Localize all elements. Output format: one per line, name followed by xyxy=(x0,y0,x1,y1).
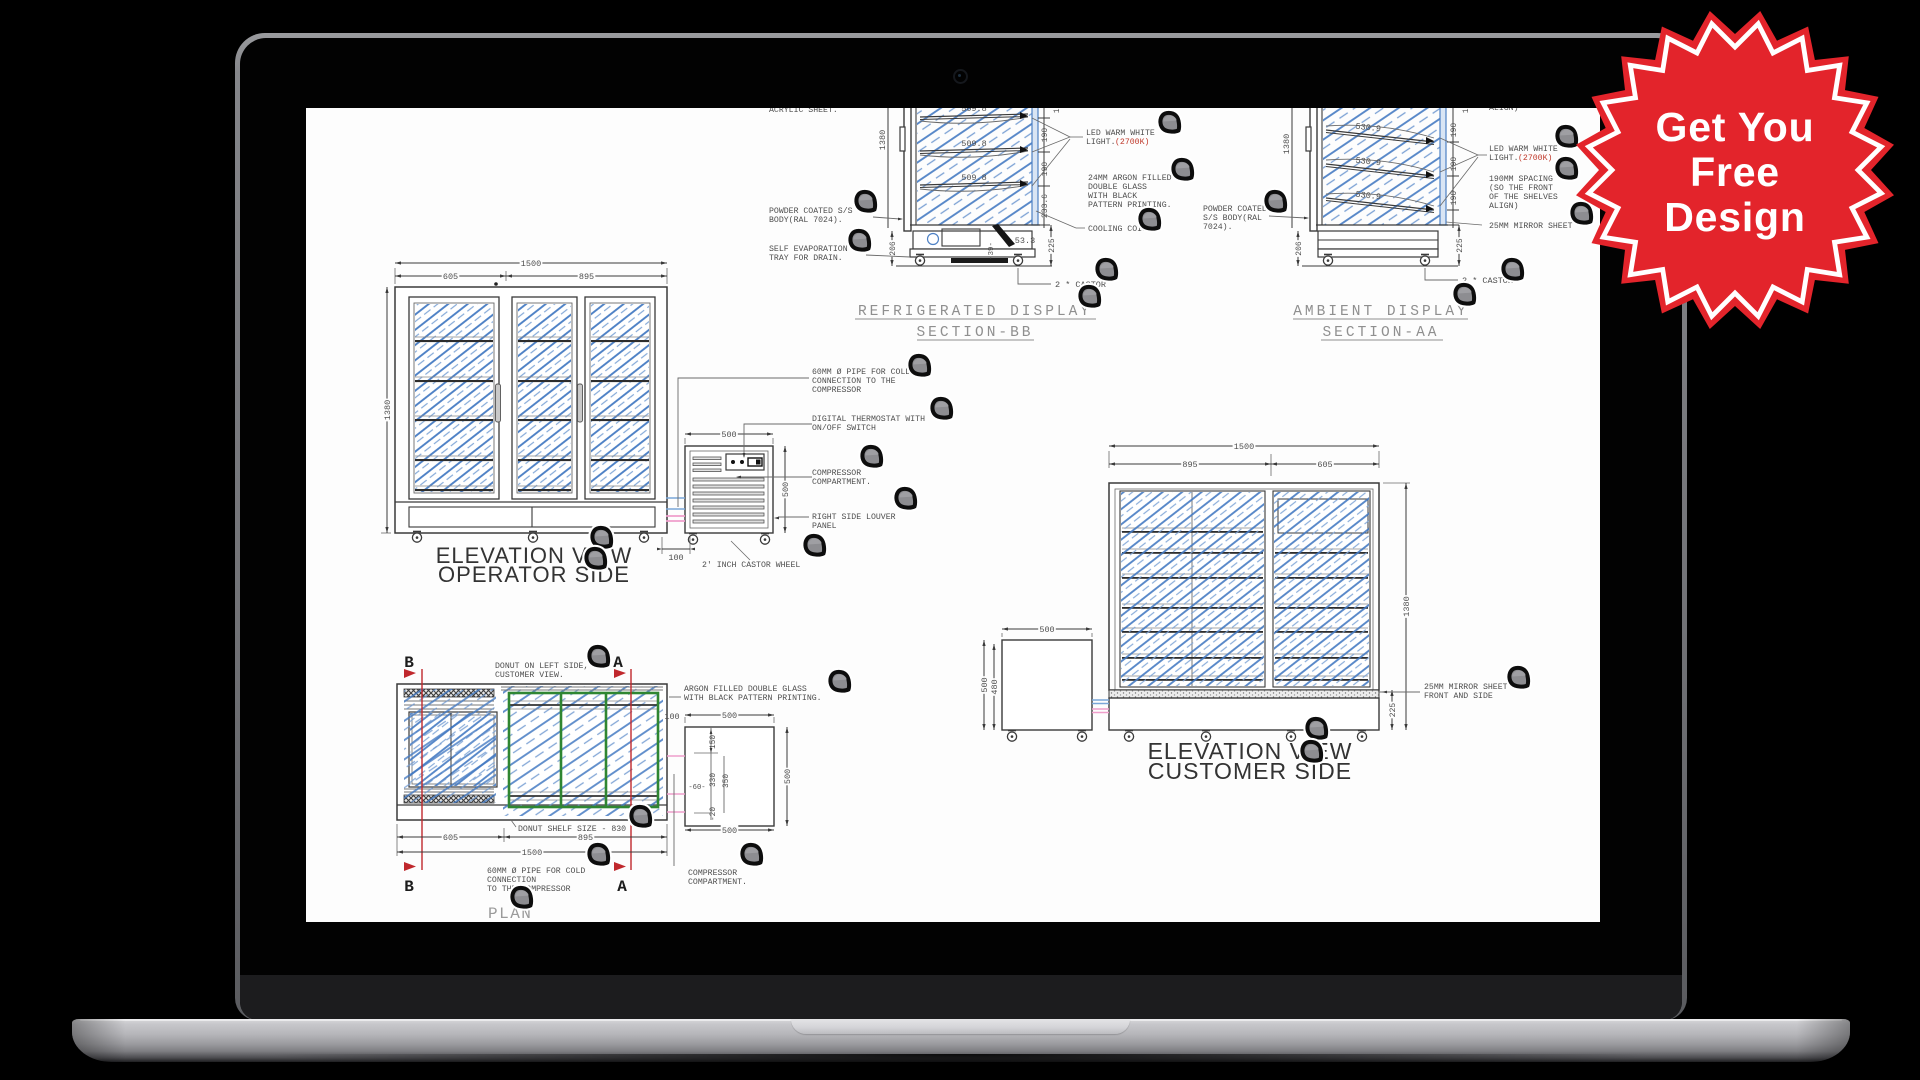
svg-text:500: 500 xyxy=(783,769,793,784)
svg-text:LED WARM WHITE: LED WARM WHITE xyxy=(1489,145,1558,154)
svg-text:COMPRESSOR: COMPRESSOR xyxy=(812,386,861,395)
svg-text:100: 100 xyxy=(668,553,683,563)
svg-text:(2700K): (2700K) xyxy=(1518,153,1552,163)
svg-text:CUSTOMER VIEW.: CUSTOMER VIEW. xyxy=(495,671,564,680)
svg-text:206: 206 xyxy=(889,241,898,256)
svg-text:500: 500 xyxy=(721,430,736,440)
svg-text:1500: 1500 xyxy=(522,848,542,858)
svg-text:206: 206 xyxy=(1295,241,1304,256)
svg-text:225: 225 xyxy=(1389,703,1398,718)
svg-text:895: 895 xyxy=(1182,460,1197,470)
svg-text:60MM Ø PIPE FOR COLD: 60MM Ø PIPE FOR COLD xyxy=(487,866,585,876)
svg-text:1380: 1380 xyxy=(1402,596,1412,616)
svg-text:190MM SPACING: 190MM SPACING xyxy=(1489,175,1553,184)
svg-text:CONNECTION TO THE: CONNECTION TO THE xyxy=(812,377,896,386)
svg-text:330: 330 xyxy=(710,773,718,787)
svg-text:DIGITAL THERMOSTAT WITH: DIGITAL THERMOSTAT WITH xyxy=(812,415,925,424)
svg-text:509.8: 509.8 xyxy=(961,108,987,114)
svg-text:PATTERN PRINTING.: PATTERN PRINTING. xyxy=(1088,201,1172,210)
svg-text:Design: Design xyxy=(1664,194,1806,240)
svg-text:FRONT AND SIDE: FRONT AND SIDE xyxy=(1424,692,1493,701)
svg-text:WITH BLACK: WITH BLACK xyxy=(1088,192,1137,201)
svg-text:605: 605 xyxy=(443,833,458,843)
svg-text:1500: 1500 xyxy=(521,259,541,269)
svg-text:480: 480 xyxy=(990,679,1000,694)
svg-text:A: A xyxy=(617,878,627,896)
svg-text:190: 190 xyxy=(1450,191,1459,206)
svg-text:(SO THE FRONT: (SO THE FRONT xyxy=(1489,183,1553,193)
svg-text:ARGON FILLED DOUBLE GLASS: ARGON FILLED DOUBLE GLASS xyxy=(684,685,807,694)
svg-text:233.6: 233.6 xyxy=(1041,194,1050,218)
svg-text:B: B xyxy=(404,654,414,672)
svg-text:POWDER COATED: POWDER COATED xyxy=(1203,205,1267,214)
svg-text:7024).: 7024). xyxy=(1203,222,1232,232)
svg-text:SELF EVAPORATION: SELF EVAPORATION xyxy=(769,245,848,254)
svg-text:AMBIENT DISPLAY: AMBIENT DISPLAY xyxy=(1293,304,1469,320)
svg-text:500: 500 xyxy=(1039,625,1054,635)
svg-text:ALIGN): ALIGN) xyxy=(1489,201,1518,211)
svg-text:150: 150 xyxy=(710,735,718,749)
svg-text:895: 895 xyxy=(579,272,594,282)
svg-text:225: 225 xyxy=(1456,238,1465,253)
svg-text:DOUBLE GLASS: DOUBLE GLASS xyxy=(1088,183,1147,192)
svg-text:605: 605 xyxy=(1317,460,1332,470)
svg-text:POWDER COATED S/S: POWDER COATED S/S xyxy=(769,206,853,216)
svg-text:REFRIGERATED DISPLAY: REFRIGERATED DISPLAY xyxy=(858,304,1092,320)
svg-text:B: B xyxy=(404,878,414,896)
svg-text:ACRYLIC SHEET.: ACRYLIC SHEET. xyxy=(769,108,838,115)
svg-text:190: 190 xyxy=(1041,128,1050,143)
svg-text:115: 115 xyxy=(1053,108,1062,113)
svg-text:(2700K): (2700K) xyxy=(1115,137,1149,147)
svg-text:190: 190 xyxy=(1450,123,1459,138)
svg-text:ON/OFF SWITCH: ON/OFF SWITCH xyxy=(812,423,876,433)
svg-text:BODY(RAL 7024).: BODY(RAL 7024). xyxy=(769,215,843,225)
svg-text:-20: -20 xyxy=(710,807,718,821)
svg-text:509.8: 509.8 xyxy=(961,173,987,183)
svg-text:RIGHT SIDE LOUVER: RIGHT SIDE LOUVER xyxy=(812,513,896,522)
svg-text:-39-: -39- xyxy=(988,242,996,260)
svg-text:1380: 1380 xyxy=(878,130,888,150)
svg-text:25MM MIRROR SHEET: 25MM MIRROR SHEET xyxy=(1489,222,1573,231)
svg-text:WITH BLACK PATTERN PRINTING.: WITH BLACK PATTERN PRINTING. xyxy=(684,694,822,703)
svg-text:500: 500 xyxy=(781,482,791,497)
svg-text:COMPRESSOR: COMPRESSOR xyxy=(812,469,861,478)
svg-text:SECTION-BB: SECTION-BB xyxy=(916,325,1033,341)
svg-text:ALIGN): ALIGN) xyxy=(1489,108,1518,113)
svg-text:100: 100 xyxy=(664,712,679,722)
svg-text:COMPARTMENT.: COMPARTMENT. xyxy=(688,878,747,887)
svg-text:500: 500 xyxy=(722,711,737,721)
svg-text:2' INCH CASTOR WHEEL: 2' INCH CASTOR WHEEL xyxy=(702,560,800,570)
svg-text:OF THE SHELVES: OF THE SHELVES xyxy=(1489,193,1558,202)
svg-text:60MM Ø PIPE FOR COLD: 60MM Ø PIPE FOR COLD xyxy=(812,367,910,377)
svg-text:-60-: -60- xyxy=(688,784,705,792)
svg-text:DONUT SHELF SIZE - 830: DONUT SHELF SIZE - 830 xyxy=(518,825,626,834)
svg-text:TRAY FOR DRAIN.: TRAY FOR DRAIN. xyxy=(769,254,843,263)
svg-text:500: 500 xyxy=(722,826,737,836)
svg-text:24MM ARGON FILLED: 24MM ARGON FILLED xyxy=(1088,174,1172,183)
svg-text:53.3: 53.3 xyxy=(1015,236,1035,246)
svg-text:Get You: Get You xyxy=(1656,104,1815,150)
svg-text:895: 895 xyxy=(578,833,593,843)
svg-text:S/S BODY(RAL: S/S BODY(RAL xyxy=(1203,213,1262,223)
svg-text:25MM MIRROR SHEET: 25MM MIRROR SHEET xyxy=(1424,683,1508,692)
svg-text:COOLING COIL: COOLING COIL xyxy=(1088,225,1147,234)
svg-text:115: 115 xyxy=(1462,108,1471,113)
svg-text:1380: 1380 xyxy=(383,400,393,420)
svg-text:PANEL: PANEL xyxy=(812,522,837,531)
svg-text:DONUT ON LEFT SIDE,: DONUT ON LEFT SIDE, xyxy=(495,662,588,671)
svg-text:605: 605 xyxy=(443,272,458,282)
svg-text:COMPARTMENT.: COMPARTMENT. xyxy=(812,478,871,487)
svg-text:LIGHT.: LIGHT. xyxy=(1489,154,1518,163)
svg-text:1500: 1500 xyxy=(1234,442,1254,452)
svg-text:LIGHT.: LIGHT. xyxy=(1086,138,1115,147)
svg-text:509.8: 509.8 xyxy=(961,139,987,149)
svg-text:LED WARM WHITE: LED WARM WHITE xyxy=(1086,129,1155,138)
svg-text:SECTION-AA: SECTION-AA xyxy=(1322,325,1439,341)
svg-text:225: 225 xyxy=(1048,238,1057,253)
svg-text:COMPRESSOR: COMPRESSOR xyxy=(688,869,737,878)
svg-text:Free: Free xyxy=(1690,149,1780,195)
svg-text:CONNECTION: CONNECTION xyxy=(487,876,536,885)
svg-text:1380: 1380 xyxy=(1282,134,1292,154)
